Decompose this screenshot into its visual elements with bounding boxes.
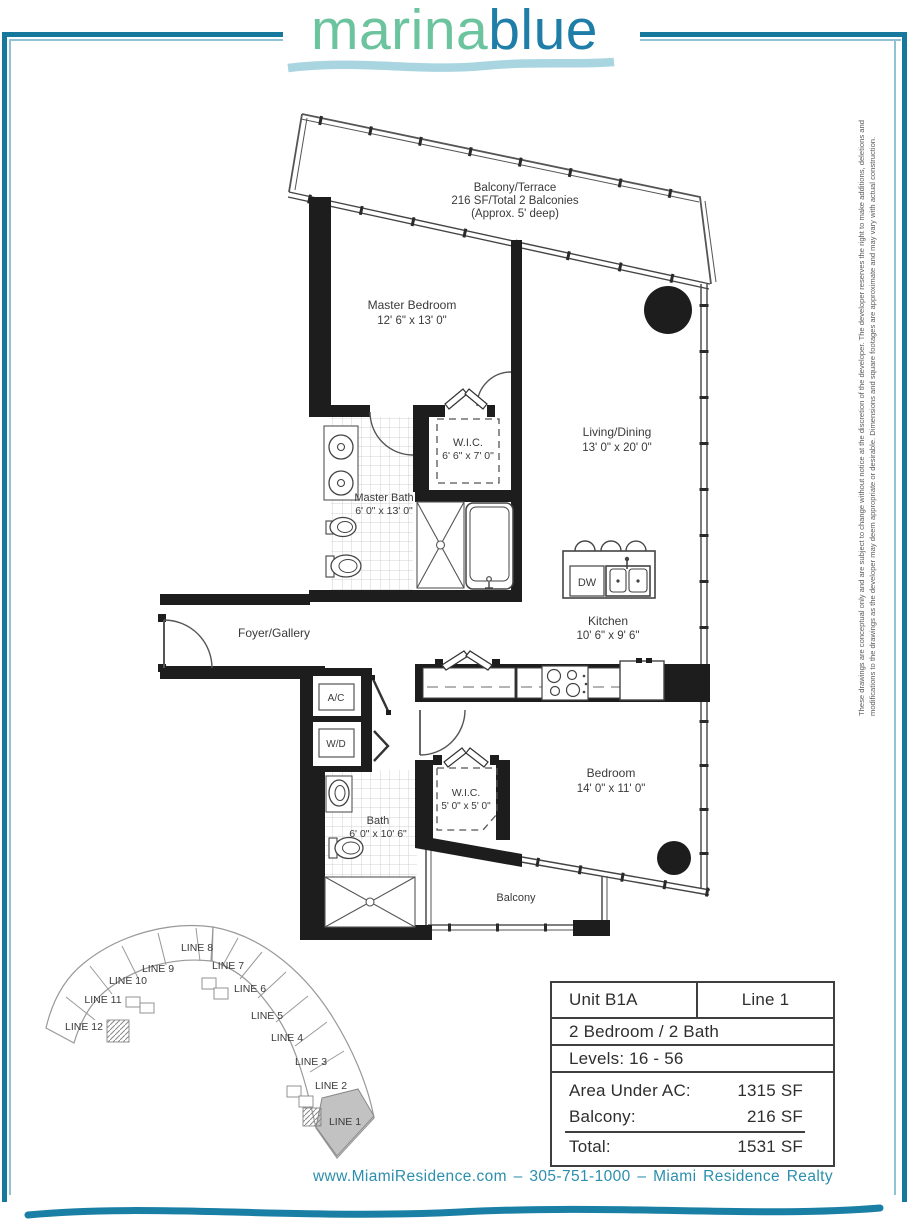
label-master-wic-dims: 6' 6" x 7' 0" <box>442 450 494 462</box>
table-row-area: Area Under AC: 1315 SF <box>552 1078 833 1104</box>
label-balcony2: Balcony <box>496 892 536 904</box>
island-stools <box>575 541 646 551</box>
label-bedroom2: Bedroom <box>587 766 636 780</box>
disclaimer-text: These drawings are conceptual only and a… <box>856 100 880 716</box>
keyplan-line-10: LINE 10 <box>109 975 147 987</box>
table-row-bedbath: 2 Bedroom / 2 Bath <box>552 1017 833 1044</box>
master-shower <box>417 502 464 588</box>
label-bedroom2-dims: 14' 0" x 11' 0" <box>577 783 646 795</box>
floorplan-page: marinablue <box>0 0 909 1222</box>
keyplan-line-7: LINE 7 <box>212 960 244 972</box>
total-value: 1531 SF <box>737 1137 803 1157</box>
label-master-bedroom-dims: 12' 6" x 13' 0" <box>377 315 446 327</box>
balcony-label: Balcony: <box>569 1107 636 1127</box>
disclaimer-line-2: modifications to the drawings as the dev… <box>867 100 878 716</box>
label-dw: DW <box>578 577 597 589</box>
label-balcony-terrace-sf: 216 SF/Total 2 Balconies <box>451 195 578 207</box>
line-cell: Line 1 <box>698 990 833 1010</box>
keyplan-line-11: LINE 11 <box>84 994 121 1006</box>
keyplan: LINE 1 LINE 2 LINE 3 LINE 4 LINE 5 LINE … <box>46 926 374 1158</box>
refrigerator <box>620 658 664 700</box>
bedroom-window-wall <box>701 702 707 889</box>
keyplan-line-9: LINE 9 <box>142 963 174 975</box>
label-master-bedroom: Master Bedroom <box>368 298 457 312</box>
table-total-separator <box>565 1131 805 1133</box>
wic-dashed-outlines <box>437 419 499 830</box>
label-balcony-terrace-depth: (Approx. 5' deep) <box>471 208 559 220</box>
living-window-wall <box>701 284 707 666</box>
label-living-dining: Living/Dining <box>583 425 652 439</box>
keyplan-line-2: LINE 2 <box>315 1080 347 1092</box>
label-bath2: Bath <box>367 815 390 827</box>
keyplan-line-8: LINE 8 <box>181 942 213 954</box>
keyplan-line-6: LINE 6 <box>234 983 266 995</box>
wic2-double-doors <box>444 748 488 767</box>
footer-wave-graphic <box>0 1196 909 1222</box>
label-wic2: W.I.C. <box>452 787 481 799</box>
keyplan-line-3: LINE 3 <box>295 1056 327 1068</box>
wic1-double-doors <box>445 389 487 409</box>
balcony-value: 216 SF <box>747 1107 803 1127</box>
label-living-dining-dims: 13' 0" x 20' 0" <box>582 442 651 454</box>
area-label: Area Under AC: <box>569 1081 691 1101</box>
label-master-wic: W.I.C. <box>453 437 483 449</box>
label-wd: W/D <box>326 739 345 750</box>
bathtub <box>466 503 513 589</box>
disclaimer-line-1: These drawings are conceptual only and a… <box>856 100 867 716</box>
label-kitchen: Kitchen <box>588 614 628 628</box>
label-balcony-terrace: Balcony/Terrace <box>474 182 556 194</box>
keyplan-line-1: LINE 1 <box>329 1116 361 1128</box>
table-row-unit: Unit B1A Line 1 <box>552 983 833 1017</box>
table-row-total: Total: 1531 SF <box>552 1134 833 1160</box>
keyplan-line-5: LINE 5 <box>251 1010 283 1022</box>
stove <box>542 666 588 700</box>
label-master-bath-dims: 6' 0" x 13' 0" <box>355 505 413 517</box>
shower2 <box>325 877 415 927</box>
label-kitchen-dims: 10' 6" x 9' 6" <box>576 630 639 642</box>
table-row-levels: Levels: 16 - 56 <box>552 1044 833 1071</box>
kitchen-counter-wall <box>423 651 664 700</box>
label-foyer: Foyer/Gallery <box>238 626 310 640</box>
total-label: Total: <box>569 1137 611 1157</box>
label-wic2-dims: 5' 0" x 5' 0" <box>441 801 491 812</box>
keyplan-line-12: LINE 12 <box>65 1021 103 1033</box>
kitchen-island <box>563 541 655 598</box>
label-master-bath: Master Bath <box>354 492 413 504</box>
keyplan-line-4: LINE 4 <box>271 1032 303 1044</box>
unit-cell: Unit B1A <box>552 983 698 1017</box>
label-bath2-dims: 6' 0" x 10' 6" <box>349 828 407 840</box>
table-row-balcony: Balcony: 216 SF <box>552 1104 833 1130</box>
unit-spec-table: Unit B1A Line 1 2 Bedroom / 2 Bath Level… <box>550 981 835 1167</box>
label-ac: A/C <box>328 693 345 704</box>
table-area-block: Area Under AC: 1315 SF Balcony: 216 SF T… <box>552 1071 833 1165</box>
footer-contact: www.MiamiResidence.com – 305-751-1000 – … <box>238 1168 908 1186</box>
area-value: 1315 SF <box>737 1081 803 1101</box>
